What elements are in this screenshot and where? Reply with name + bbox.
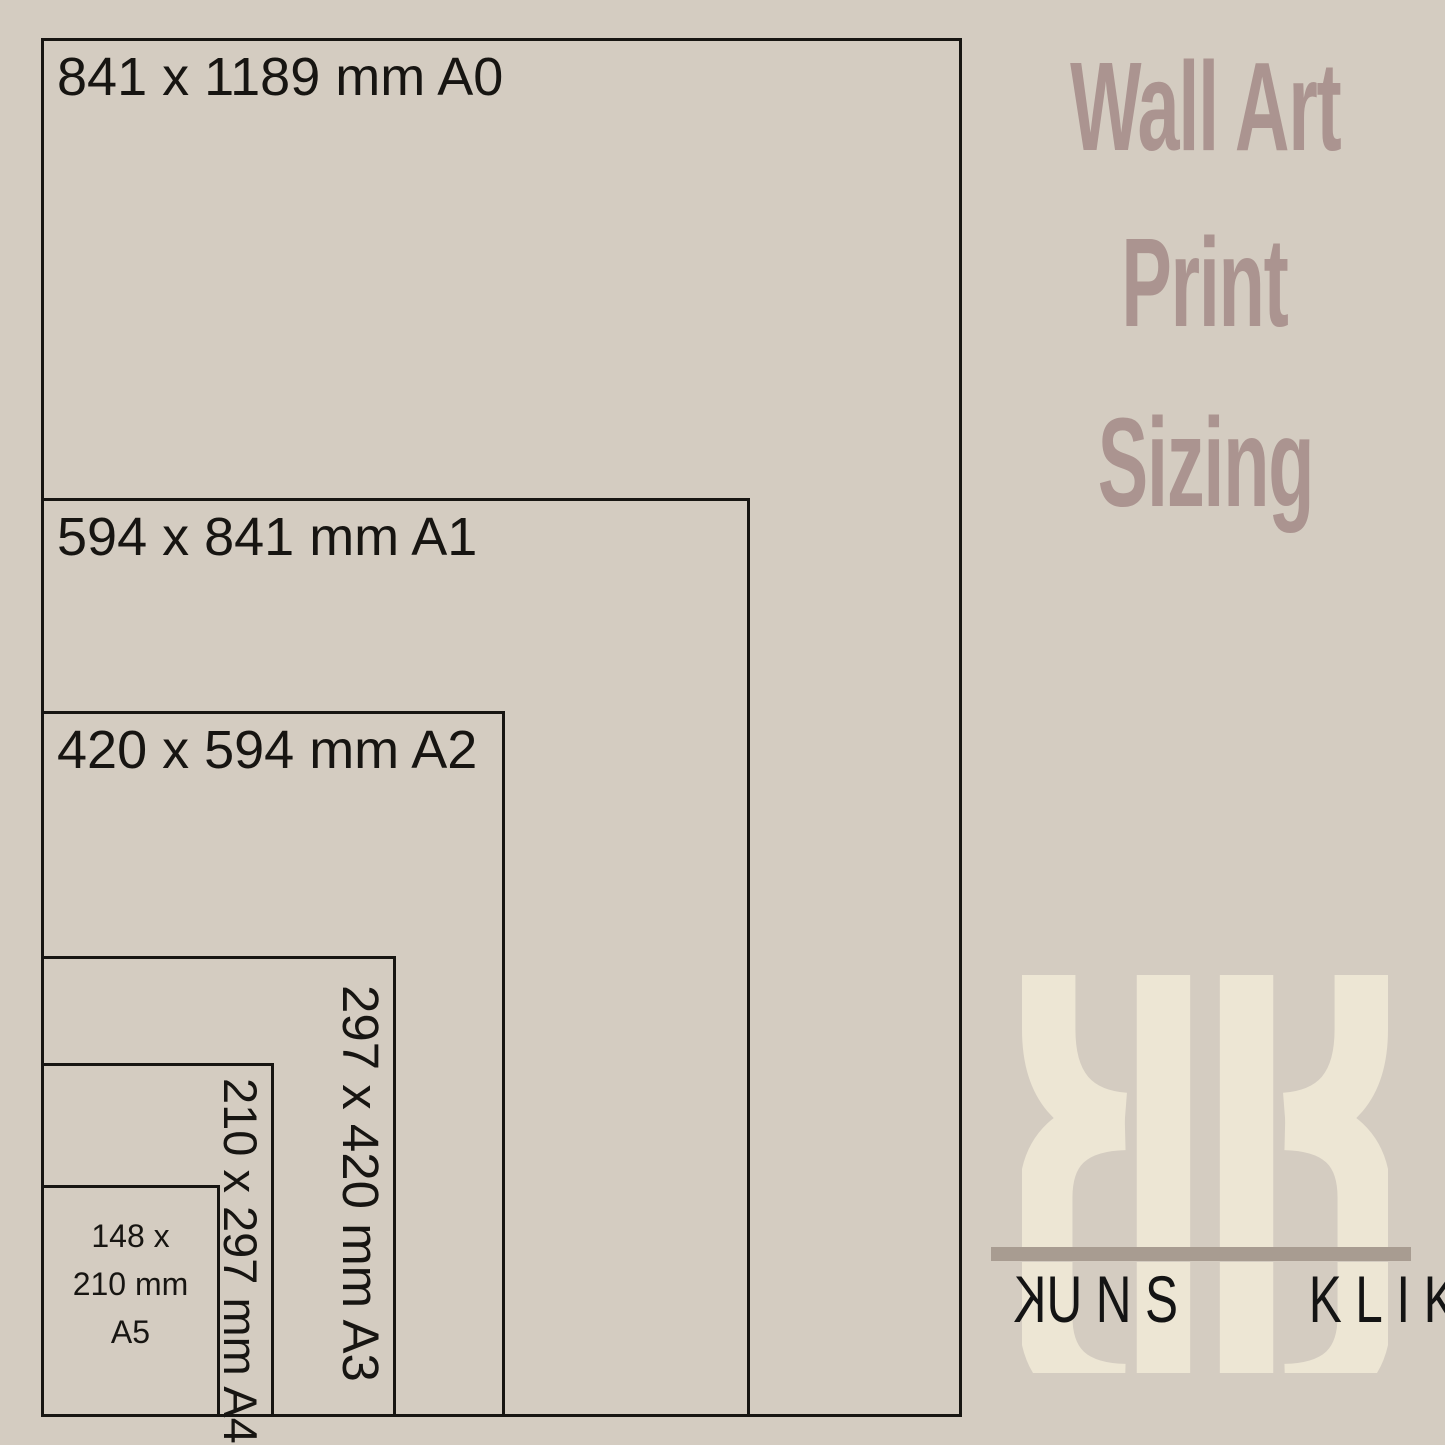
wall-art-print-sizing-poster: 841 x 1189 mm A0 594 x 841 mm A1 420 x 5… [0, 0, 1445, 1445]
monogram-k-right [1247, 975, 1365, 1252]
paper-box-a5: 148 x 210 mm A5 [41, 1185, 220, 1417]
logo-divider-bar [991, 1247, 1411, 1261]
paper-label-a3: 297 x 420 mm A3 [331, 985, 390, 1382]
paper-label-a2: 420 x 594 mm A2 [57, 719, 477, 781]
kk-monogram-icon [1022, 974, 1388, 1253]
page-title-line3: Sizing [965, 400, 1445, 526]
paper-label-a5-line2: 210 mm [44, 1260, 217, 1308]
paper-label-a1: 594 x 841 mm A1 [57, 506, 477, 568]
brand-name: KUNS KLIK [1000, 1266, 1412, 1332]
paper-label-a4: 210 x 297 mm A4 [213, 1078, 268, 1444]
monogram-k-left-mirrored [1046, 975, 1164, 1252]
brand-word-klik: KLIK [1309, 1266, 1445, 1332]
paper-label-a5-line1: 148 x [44, 1212, 217, 1260]
page-title-line1: Wall Art [965, 44, 1445, 170]
brand-word-kuns-rest: UNS [1047, 1262, 1192, 1336]
page-title-line2: Print [965, 220, 1445, 346]
paper-label-a5-line3: A5 [44, 1308, 217, 1356]
brand-word-kuns: KUNS [1000, 1266, 1192, 1332]
mirrored-k-glyph: K [1000, 1266, 1047, 1332]
paper-label-a0: 841 x 1189 mm A0 [57, 46, 503, 108]
paper-label-a5: 148 x 210 mm A5 [44, 1212, 217, 1356]
